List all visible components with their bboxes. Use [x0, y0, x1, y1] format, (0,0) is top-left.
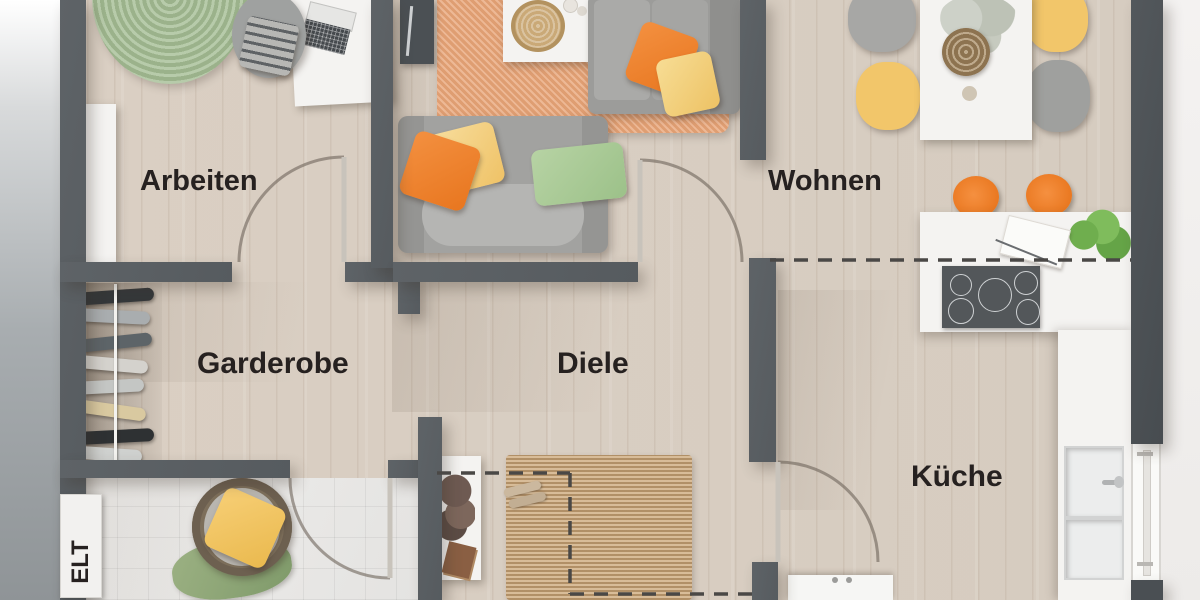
- plan-linework: [0, 0, 1200, 600]
- floor-plan: Arbeiten Wohnen Garderobe Diele Küche EL…: [0, 0, 1200, 600]
- room-label-elt: ELT: [61, 507, 101, 600]
- door-arc-kueche: [778, 462, 878, 562]
- room-label-garderobe: Garderobe: [197, 347, 349, 381]
- room-label-diele: Diele: [557, 347, 629, 381]
- room-label-arbeiten: Arbeiten: [140, 165, 258, 198]
- door-arc-elt-room: [290, 478, 390, 578]
- room-label-wohnen: Wohnen: [768, 165, 882, 198]
- room-label-kueche: Küche: [911, 460, 1003, 494]
- door-arc-living: [640, 160, 742, 262]
